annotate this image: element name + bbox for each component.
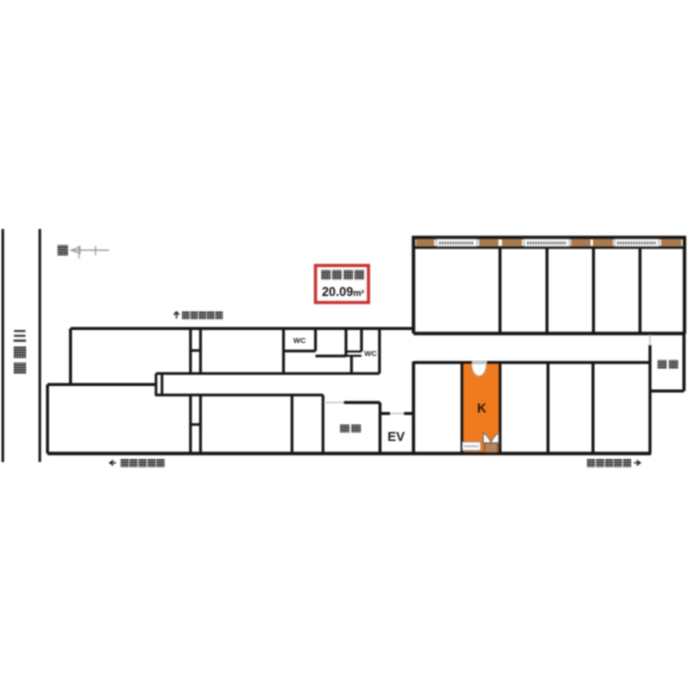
svg-text:WC: WC — [293, 336, 306, 345]
svg-text:20.09m²: 20.09m² — [322, 285, 364, 299]
svg-text:WC: WC — [364, 349, 377, 358]
svg-text:EV: EV — [388, 429, 406, 444]
svg-text:K: K — [477, 401, 487, 416]
